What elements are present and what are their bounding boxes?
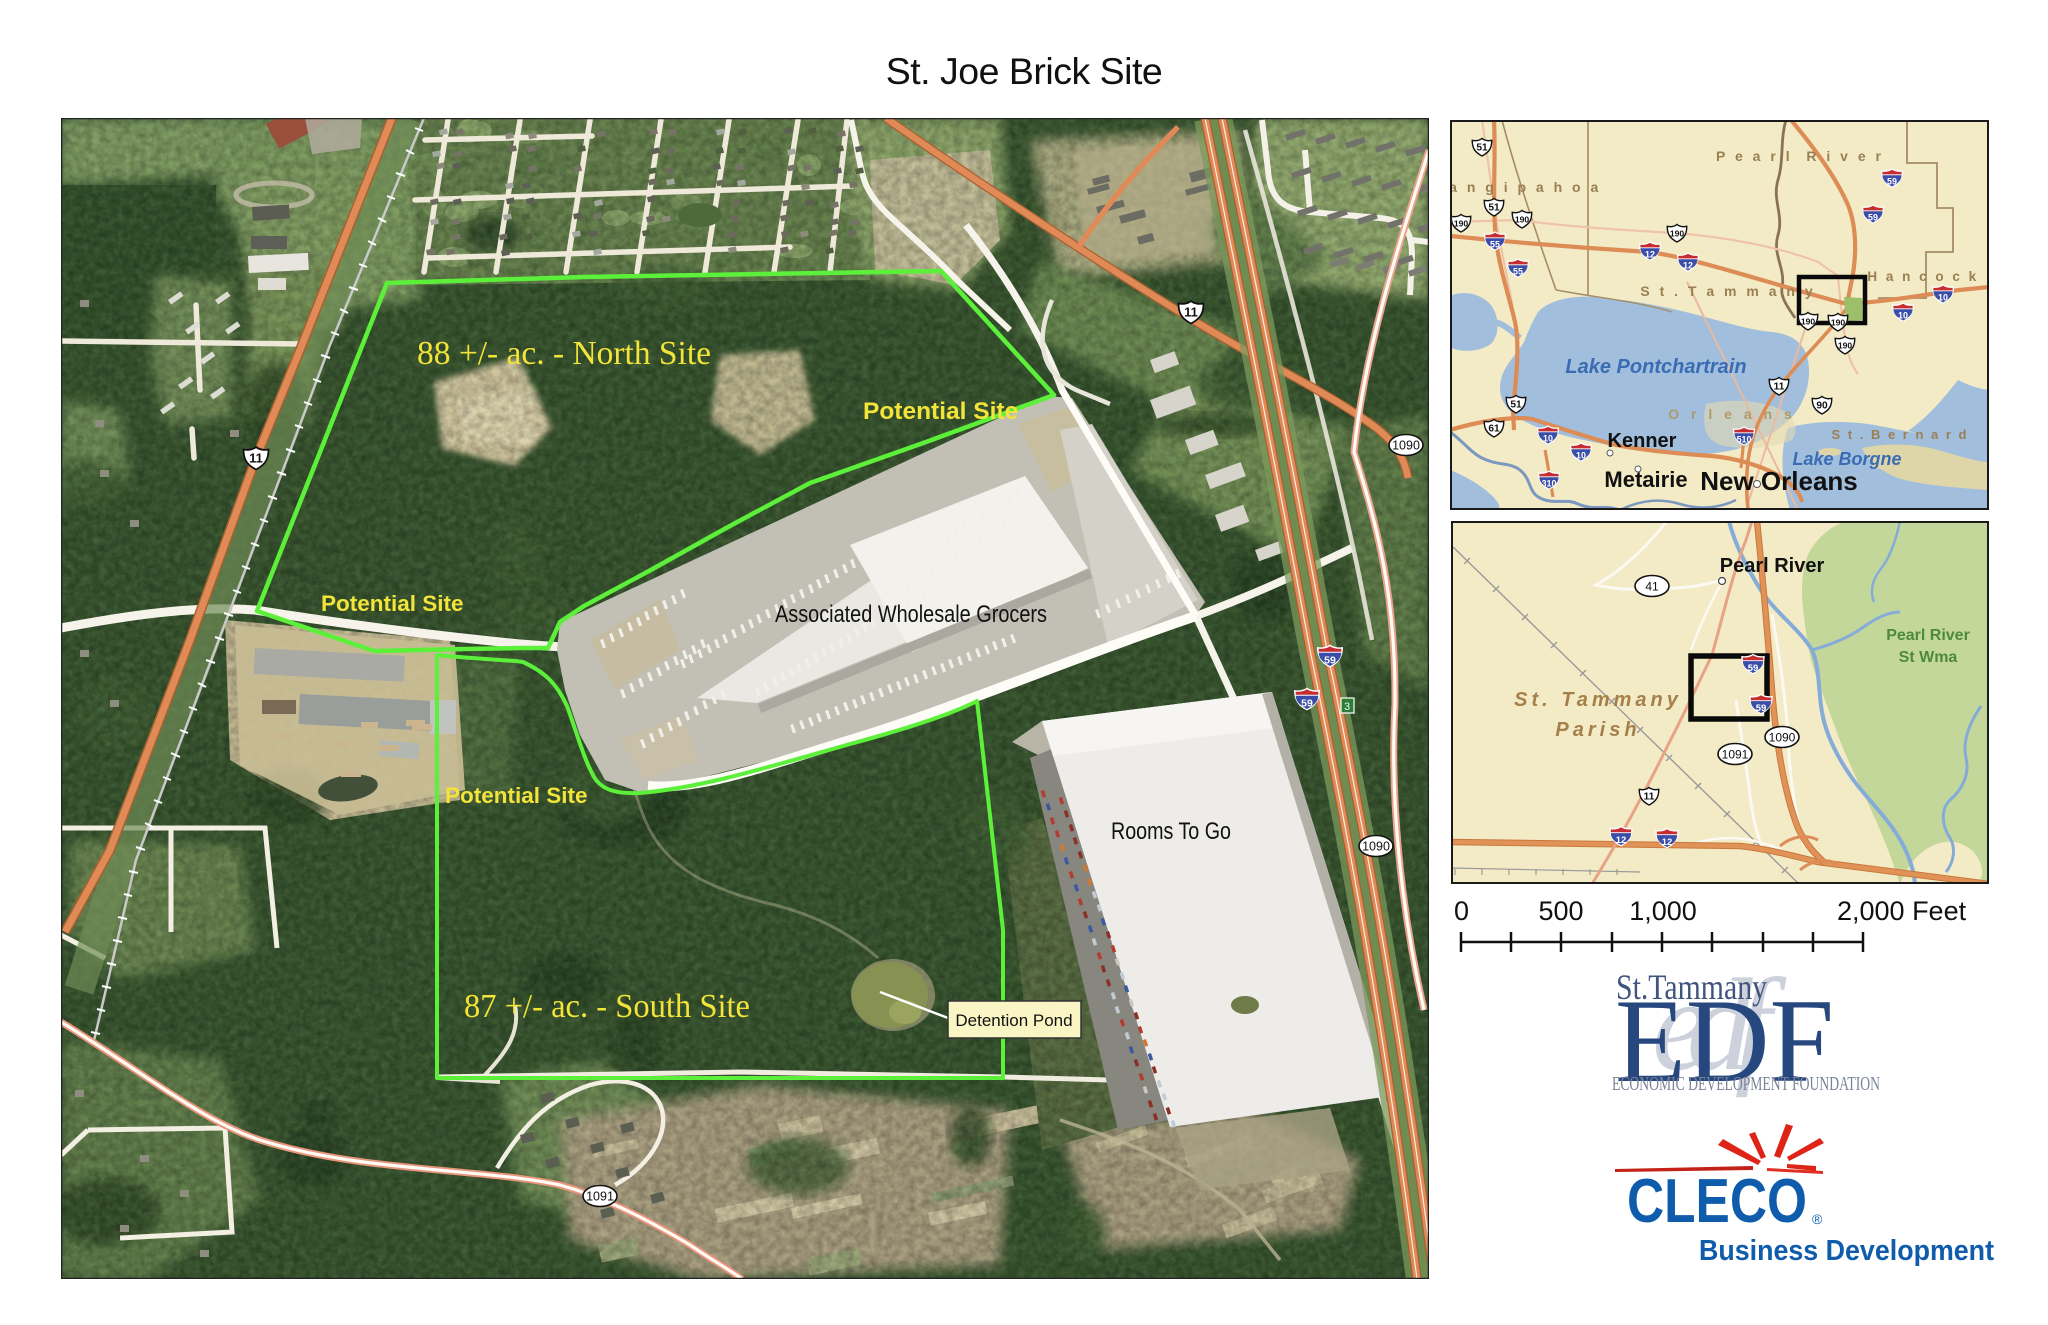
svg-text:1,000: 1,000 [1629,898,1697,926]
svg-text:Parish: Parish [1555,719,1640,741]
svg-text:59: 59 [1887,176,1897,186]
svg-text:O r l e a n s: O r l e a n s [1668,406,1795,422]
svg-text:190: 190 [1801,317,1816,327]
svg-text:St. Tammany: St. Tammany [1514,689,1682,711]
svg-text:®: ® [1812,1211,1823,1227]
svg-text:10: 10 [1938,292,1948,302]
svg-text:Associated Wholesale Grocers: Associated Wholesale Grocers [775,601,1047,628]
svg-text:190: 190 [1670,229,1685,239]
svg-text:T a n g i p a h o a: T a n g i p a h o a [1450,179,1601,195]
svg-text:Pearl River: Pearl River [1886,627,1970,644]
svg-text:59: 59 [1756,703,1767,714]
svg-text:1090: 1090 [1362,840,1390,854]
svg-text:1090: 1090 [1392,439,1420,453]
svg-text:Potential Site: Potential Site [863,398,1018,425]
svg-text:190: 190 [1454,219,1469,229]
svg-text:Metairie: Metairie [1604,467,1687,492]
svg-text:11: 11 [1774,382,1785,393]
svg-text:55: 55 [1490,239,1500,249]
svg-text:1091: 1091 [586,1190,614,1204]
svg-text:11: 11 [1644,792,1655,803]
svg-text:12: 12 [1683,260,1693,270]
svg-text:190: 190 [1831,318,1846,328]
svg-text:12: 12 [1645,249,1655,259]
svg-text:59: 59 [1301,698,1313,710]
svg-text:90: 90 [1816,401,1828,412]
svg-text:S t . B e r n a r d: S t . B e r n a r d [1832,427,1969,442]
svg-text:Lake Pontchartrain: Lake Pontchartrain [1565,356,1746,378]
svg-text:Rooms To Go: Rooms To Go [1111,818,1231,845]
svg-text:12: 12 [1662,837,1673,848]
svg-text:St Wma: St Wma [1899,649,1958,666]
svg-text:10: 10 [1898,310,1908,320]
svg-text:12: 12 [1616,835,1627,846]
svg-text:Potential Site: Potential Site [321,591,464,616]
svg-text:0: 0 [1454,898,1469,926]
svg-text:S t . T a m m a n y: S t . T a m m a n y [1640,283,1815,299]
svg-text:Pearl River: Pearl River [1720,555,1825,577]
svg-text:Potential Site: Potential Site [445,783,588,808]
svg-text:51: 51 [1476,143,1488,154]
svg-text:Kenner: Kenner [1608,430,1677,452]
svg-text:ECONOMIC DEVELOPMENT FOUNDATIO: ECONOMIC DEVELOPMENT FOUNDATION [1612,1074,1880,1095]
svg-text:51: 51 [1488,203,1500,214]
svg-text:11: 11 [1184,305,1198,320]
svg-text:88 +/- ac. - North Site: 88 +/- ac. - North Site [417,335,711,372]
svg-text:11: 11 [249,451,263,466]
svg-text:Detention Pond: Detention Pond [955,1011,1072,1030]
svg-text:55: 55 [1513,266,1523,276]
svg-text:500: 500 [1538,898,1583,926]
svg-text:Business Development: Business Development [1699,1235,1994,1267]
svg-text:59: 59 [1748,663,1759,674]
svg-text:61: 61 [1488,424,1500,435]
svg-text:190: 190 [1838,341,1853,351]
svg-text:59: 59 [1868,212,1878,222]
svg-text:10: 10 [1543,433,1553,443]
svg-text:51: 51 [1510,400,1522,411]
svg-text:41: 41 [1645,580,1659,594]
svg-text:59: 59 [1324,655,1336,667]
svg-text:87 +/- ac. - South Site: 87 +/- ac. - South Site [464,988,750,1025]
svg-text:510: 510 [1737,434,1752,444]
svg-text:1091: 1091 [1722,748,1749,762]
svg-text:10: 10 [1576,450,1586,460]
svg-text:310: 310 [1542,478,1557,488]
svg-text:CLECO: CLECO [1627,1167,1807,1236]
svg-text:3: 3 [1344,701,1350,713]
svg-text:2,000 Feet: 2,000 Feet [1837,898,1967,926]
svg-text:190: 190 [1515,215,1530,225]
svg-text:New Orleans: New Orleans [1700,466,1858,496]
svg-text:P e a r l R i v e r: P e a r l R i v e r [1716,148,1884,164]
svg-text:H a n c o c k: H a n c o c k [1867,269,1978,284]
svg-text:1090: 1090 [1769,731,1796,745]
